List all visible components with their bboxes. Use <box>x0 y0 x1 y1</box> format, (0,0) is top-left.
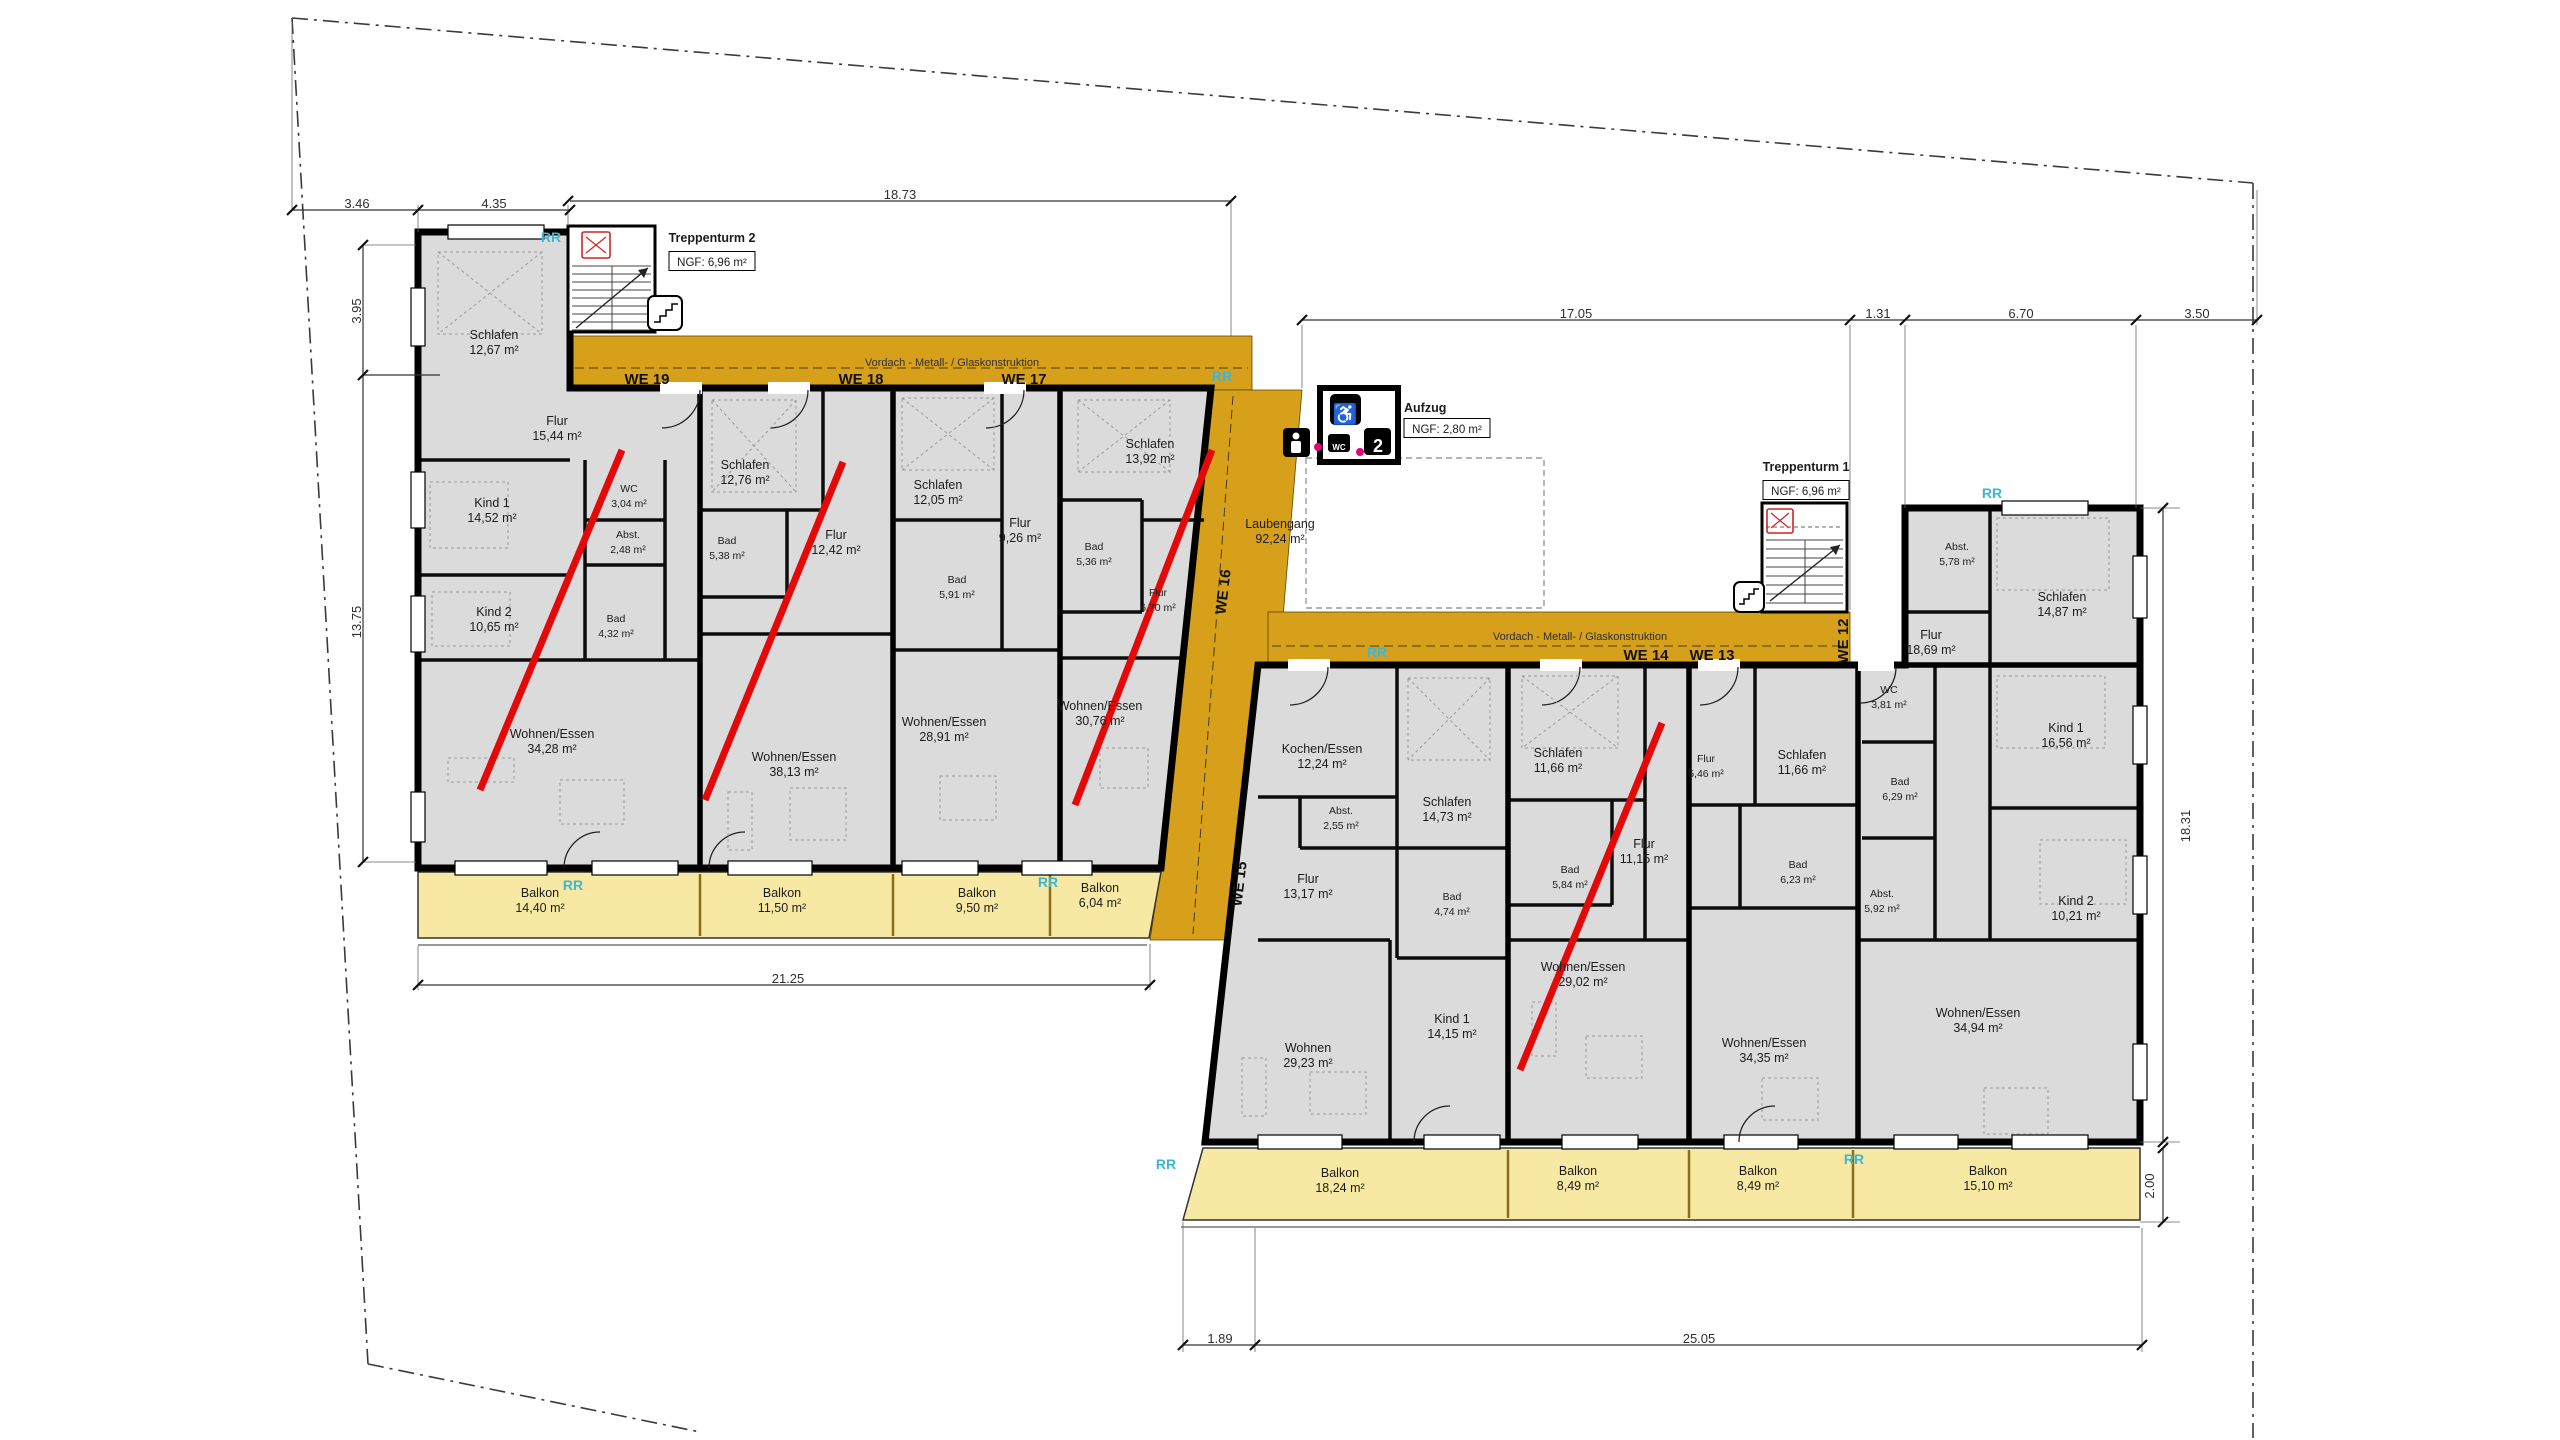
wheelchair-icon: ♿ <box>1333 402 1358 426</box>
stair-tower-1 <box>1734 503 1847 612</box>
unit-label: WE 19 <box>624 371 669 388</box>
elevator-level-2-icon: 2 <box>1373 436 1383 456</box>
room-label: Laubengang92,24 m² <box>1245 517 1315 546</box>
room-label: Schlafen12,76 m² <box>720 458 769 487</box>
roof-outline-dashed <box>1306 458 1544 608</box>
room-label: Balkon9,50 m² <box>956 886 998 915</box>
room-label: Wohnen29,23 m² <box>1283 1041 1332 1070</box>
stair-tower-2 <box>568 226 682 332</box>
floor-plan-canvas: Schlafen12,67 m²Flur15,44 m²Kind 114,52 … <box>0 0 2560 1440</box>
dimension-label: 3.46 <box>344 196 369 211</box>
rr-marker: RR <box>1156 1156 1176 1172</box>
dimension-label: 1.89 <box>1207 1331 1232 1346</box>
rr-marker: RR <box>563 877 583 893</box>
unit-label: WE 17 <box>1001 371 1046 388</box>
dimension-label: 13.75 <box>349 606 364 639</box>
canopy-label: Vordach - Metall- / Glaskonstruktion <box>865 357 1039 369</box>
room-label: Kind 114,52 m² <box>467 496 516 525</box>
rr-marker: RR <box>1982 485 2002 501</box>
rr-marker: RR <box>1038 874 1058 890</box>
room-label: Schlafen12,05 m² <box>913 478 962 507</box>
dimension-label: 2.00 <box>2142 1173 2157 1198</box>
room-label: Schlafen13,92 m² <box>1125 437 1174 466</box>
unit-label: WE 12 <box>1835 618 1852 663</box>
canopy-label: Vordach - Metall- / Glaskonstruktion <box>1493 631 1667 643</box>
dimension-label: 6.70 <box>2008 306 2033 321</box>
rr-marker: RR <box>1212 368 1232 384</box>
dimension-label: 21.25 <box>772 971 805 986</box>
room-label: Balkon15,10 m² <box>1963 1164 2012 1193</box>
unit-label: WE 13 <box>1689 647 1734 664</box>
dimension-label: 3.50 <box>2184 306 2209 321</box>
marker-dot <box>1356 448 1364 456</box>
room-label: Balkon8,49 m² <box>1557 1164 1599 1193</box>
room-label: Balkon11,50 m² <box>758 886 806 915</box>
room-label: Schlafen12,67 m² <box>469 328 518 357</box>
rr-marker: RR <box>541 229 561 245</box>
dimension-label: 18.31 <box>2178 810 2193 843</box>
room-label: Balkon6,04 m² <box>1079 881 1121 910</box>
unit-label: WE 18 <box>838 371 883 388</box>
elevator-area: NGF: 2,80 m² <box>1412 424 1482 436</box>
wc-icon: WC <box>1332 443 1346 452</box>
room-label: Kind 114,15 m² <box>1427 1012 1476 1041</box>
room-label: Kind 210,21 m² <box>2051 894 2100 923</box>
dimension-label: 25.05 <box>1683 1331 1716 1346</box>
stair-tower-2-title: Treppenturm 2 <box>669 231 756 245</box>
dimension-label: 3.95 <box>349 298 364 323</box>
room-label: Balkon8,49 m² <box>1737 1164 1779 1193</box>
room-label: Schlafen11,66 m² <box>1778 748 1827 777</box>
dimension-label: 1.31 <box>1865 306 1890 321</box>
stair-tower-1-area: NGF: 6,96 m² <box>1771 486 1841 498</box>
room-label: Schlafen14,73 m² <box>1422 795 1471 824</box>
room-label: Kind 116,56 m² <box>2041 721 2090 750</box>
dimension-label: 17.05 <box>1560 306 1593 321</box>
rr-marker: RR <box>1367 644 1387 660</box>
floor-plan-drawing: Schlafen12,67 m²Flur15,44 m²Kind 114,52 … <box>0 0 2560 1440</box>
stairs-icon <box>648 296 682 330</box>
stair-tower-2-area: NGF: 6,96 m² <box>677 257 747 269</box>
room-label: Balkon14,40 m² <box>515 886 564 915</box>
marker-dot <box>1314 443 1322 451</box>
room-label: Balkon18,24 m² <box>1315 1166 1364 1195</box>
unit-label: WE 14 <box>1623 647 1669 664</box>
room-label: Kind 210,65 m² <box>469 605 518 634</box>
rr-marker: RR <box>1844 1151 1864 1167</box>
dimension-label: 18.73 <box>884 187 917 202</box>
dimension-label: 4.35 <box>481 196 506 211</box>
stair-tower-1-title: Treppenturm 1 <box>1763 460 1850 474</box>
elevator-title: Aufzug <box>1404 401 1446 415</box>
room-label: Schlafen11,66 m² <box>1534 746 1583 775</box>
room-label: Schlafen14,87 m² <box>2037 590 2086 619</box>
